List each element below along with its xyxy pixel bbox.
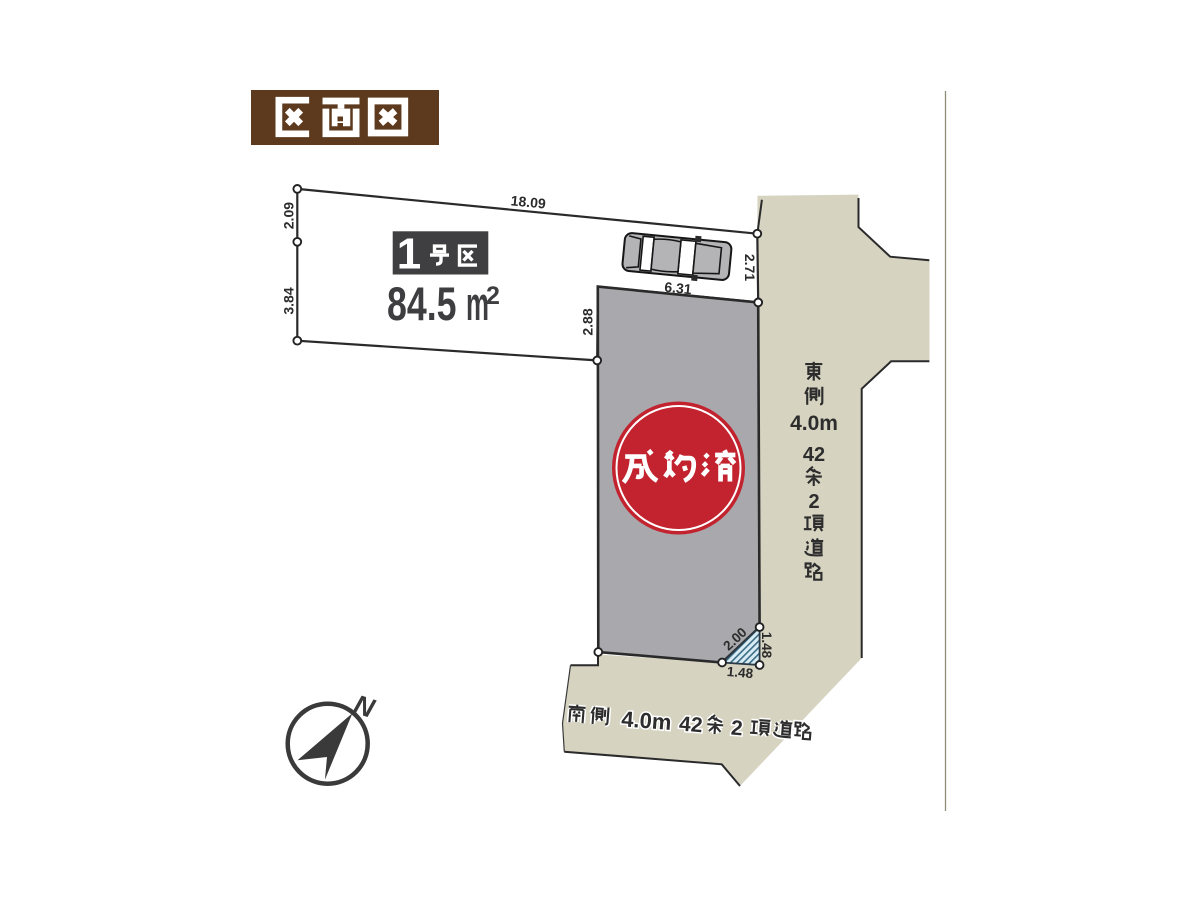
svg-text:2: 2: [486, 282, 500, 310]
svg-text:2: 2: [808, 491, 819, 513]
svg-text:1.48: 1.48: [726, 664, 754, 681]
svg-text:N: N: [350, 689, 378, 724]
svg-text:3.84: 3.84: [281, 287, 297, 314]
svg-text:84.5: 84.5: [387, 277, 457, 330]
svg-text:1: 1: [397, 230, 421, 279]
svg-text:2.09: 2.09: [280, 202, 296, 229]
svg-text:42: 42: [803, 444, 825, 466]
svg-text:2: 2: [730, 716, 743, 740]
svg-text:18.09: 18.09: [510, 192, 547, 211]
svg-text:1.48: 1.48: [759, 632, 774, 659]
svg-text:2.88: 2.88: [580, 308, 596, 335]
svg-text:4.0m: 4.0m: [620, 706, 672, 735]
svg-text:2.71: 2.71: [742, 254, 758, 281]
svg-text:6.31: 6.31: [664, 279, 693, 298]
svg-text:4.0m: 4.0m: [790, 412, 838, 435]
svg-text:42: 42: [678, 713, 703, 738]
